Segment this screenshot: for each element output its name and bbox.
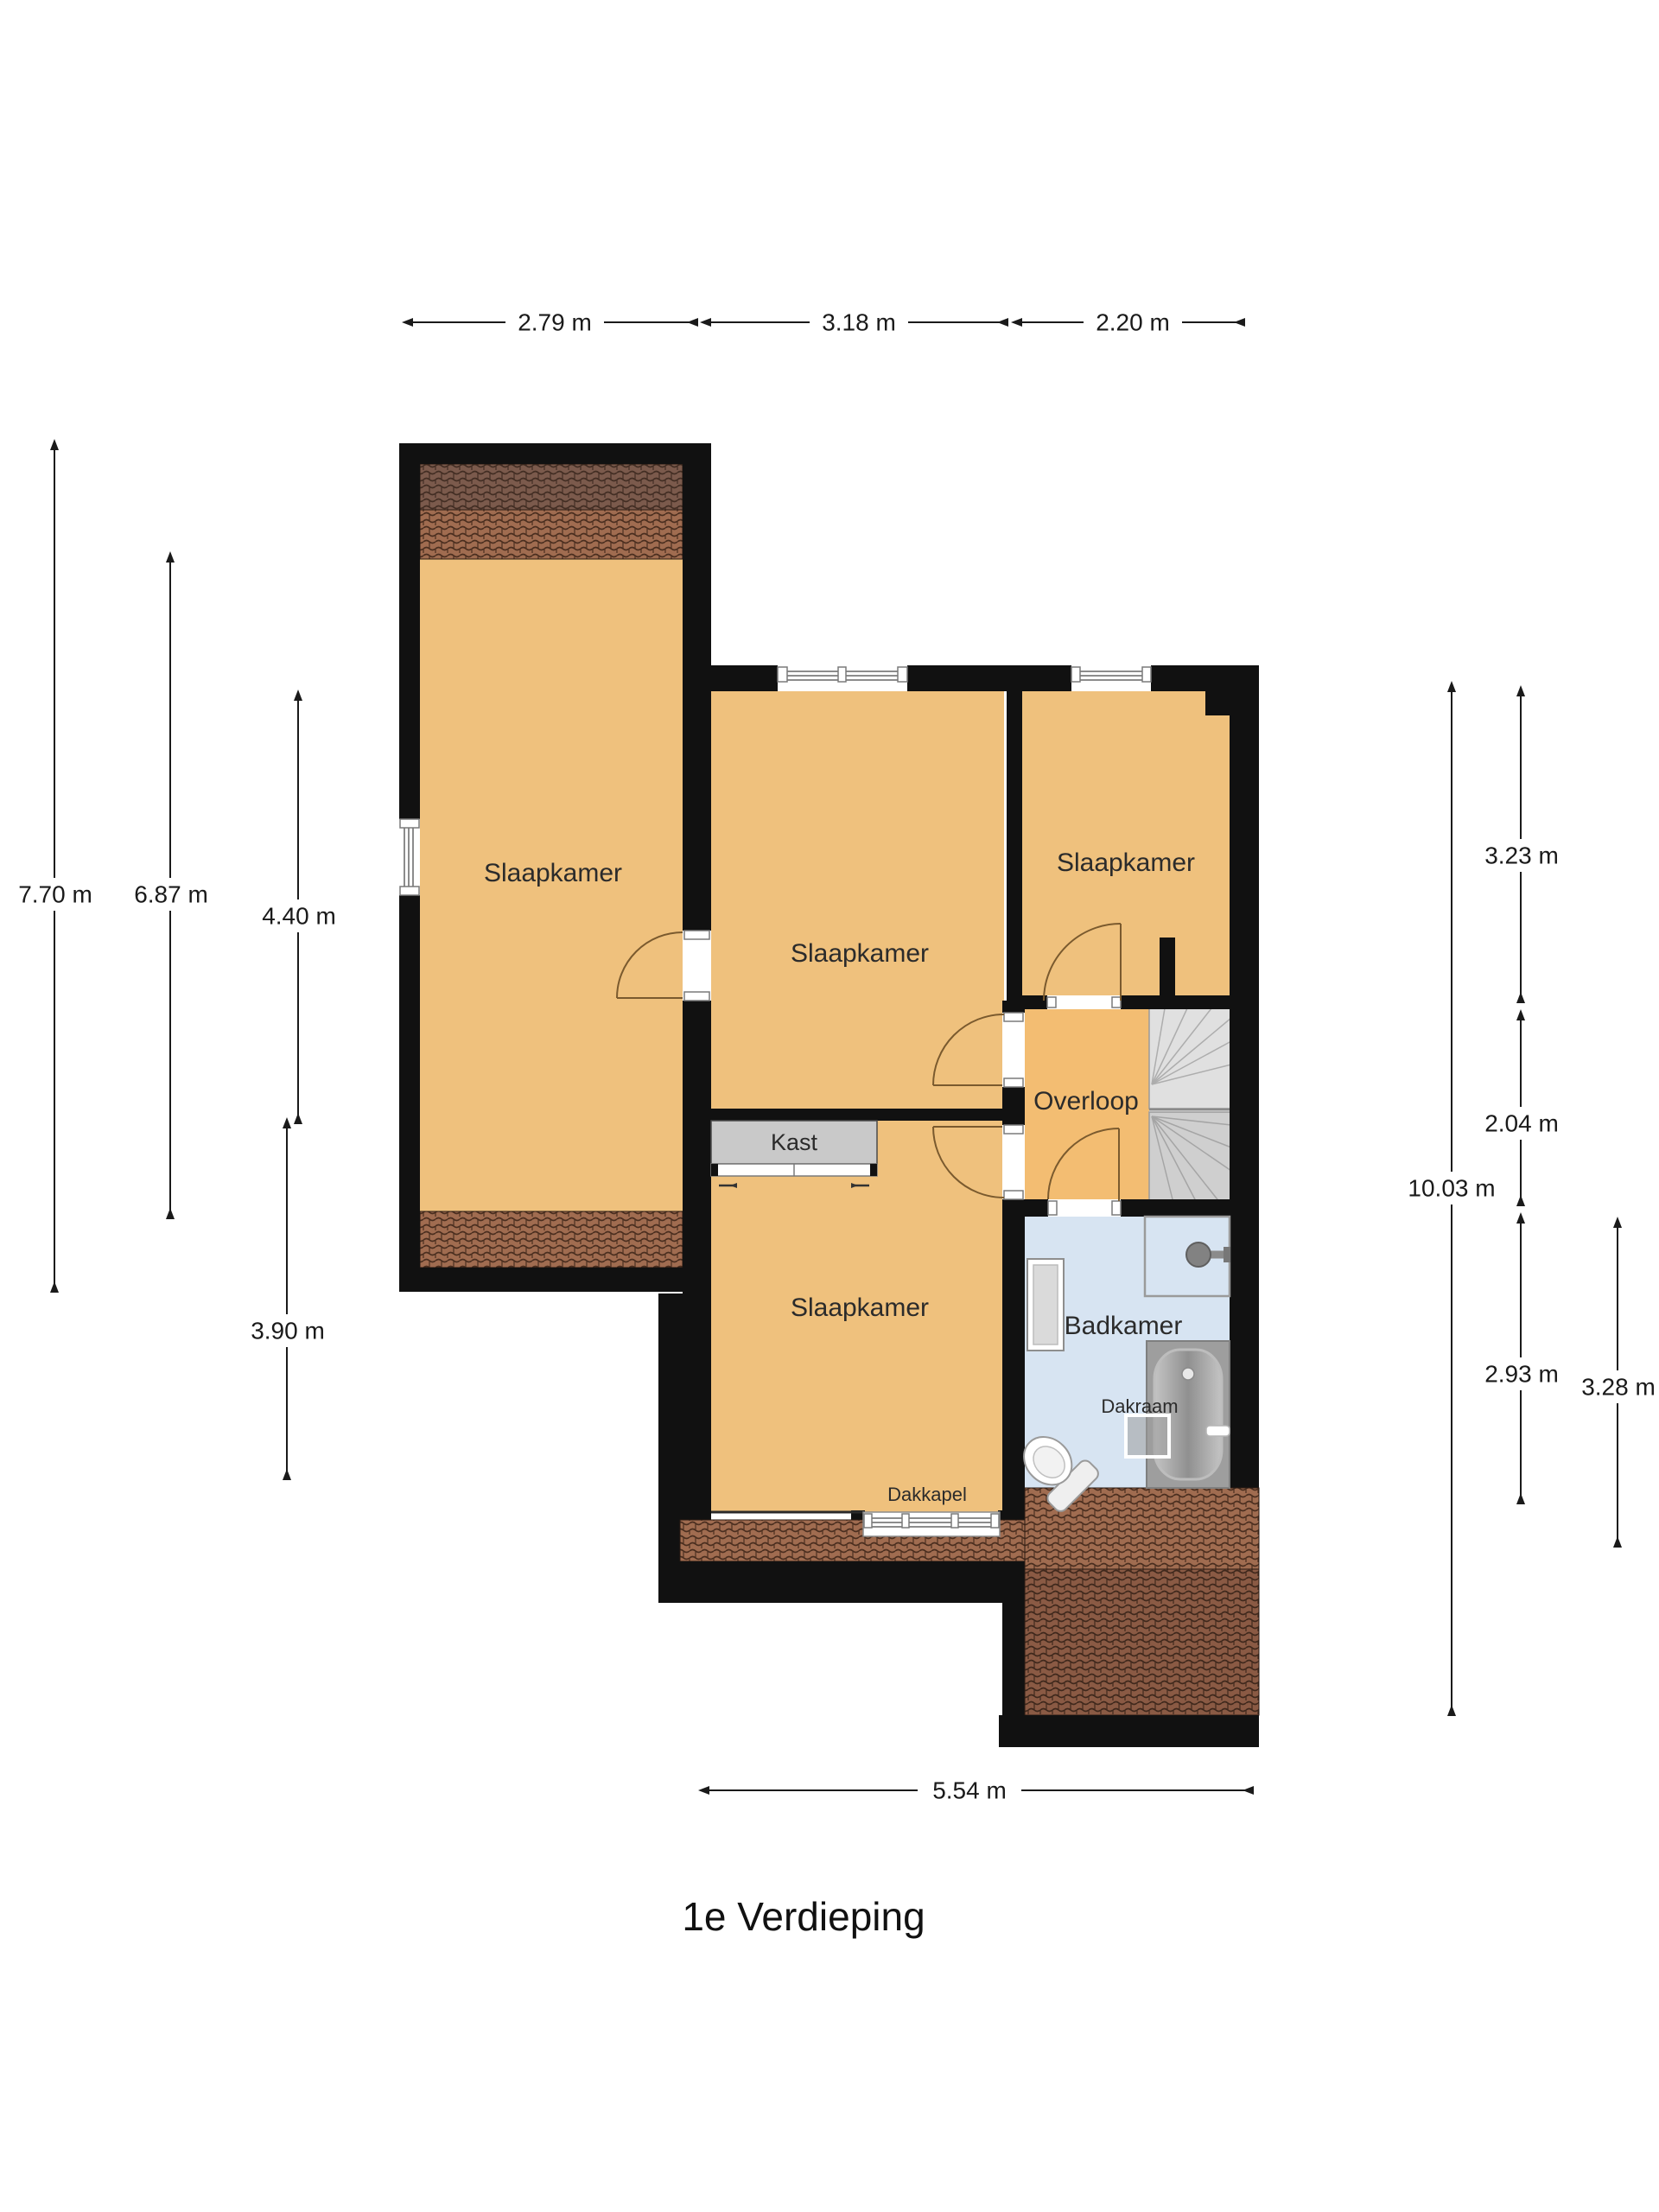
dim-right-3: 2.93 m xyxy=(1484,1360,1559,1387)
dim-left-bottom-room: 3.90 m xyxy=(238,1128,338,1479)
wall-bottomroom-outer-band xyxy=(658,1561,1025,1603)
radiator xyxy=(1027,1259,1064,1351)
roof-bathroom-lower xyxy=(1025,1569,1259,1715)
dim-right-bedroom: 3.23 m xyxy=(1471,696,1572,1002)
dim-top-middle-room: 3.18 m xyxy=(710,306,1007,339)
bedroom-right-floor xyxy=(1022,691,1230,1001)
dim-right-bathroom-roof: 3.28 m xyxy=(1568,1227,1659,1547)
dim-top-1: 2.79 m xyxy=(518,308,592,335)
dim-left-interior: 6.87 m xyxy=(121,562,221,1218)
wall-leftwing-top xyxy=(399,443,711,464)
dim-right-2: 2.04 m xyxy=(1484,1109,1559,1136)
wall-mid-right-divider xyxy=(1007,691,1022,1001)
dim-top-left-wing: 2.79 m xyxy=(412,306,697,339)
dim-left-3: 4.40 m xyxy=(262,902,336,929)
window-dormer xyxy=(863,1512,1000,1536)
floorplan-canvas: Slaapkamer Slaapkamer Slaapkamer Slaapka… xyxy=(0,0,1659,2212)
bathtub-handle xyxy=(1206,1426,1230,1436)
wall-leftwing-bottom xyxy=(399,1268,711,1292)
shower-head-icon xyxy=(1186,1243,1211,1267)
bedroom-middle-floor xyxy=(711,691,1004,1109)
bathroom-label: Badkamer xyxy=(1065,1312,1183,1340)
staircase xyxy=(1149,1008,1231,1203)
window-left-wall xyxy=(399,819,420,895)
closet-label: Kast xyxy=(771,1129,818,1155)
wall-chimney-notch xyxy=(1205,691,1230,715)
floorplan-page: { "floor_title": "1e Verdieping", "rooms… xyxy=(0,0,1659,2212)
dim-bottom-1: 5.54 m xyxy=(932,1777,1007,1803)
dim-left-4: 3.90 m xyxy=(251,1317,325,1344)
roof-window-icon xyxy=(1126,1415,1169,1457)
wall-bathroom-outer-band xyxy=(999,1715,1259,1747)
roof-left-wing-top-dark xyxy=(420,464,683,510)
bedroom-left-label: Slaapkamer xyxy=(484,859,622,887)
dim-left-exterior: 7.70 m xyxy=(5,449,105,1292)
stairs-upper-flight xyxy=(1149,1008,1231,1109)
bathtub-drain xyxy=(1182,1368,1194,1380)
floors xyxy=(420,559,1230,1512)
dim-left-upper-room: 4.40 m xyxy=(249,700,349,1123)
roof-left-wing-bottom xyxy=(420,1211,683,1268)
dim-top-3: 2.20 m xyxy=(1096,308,1170,335)
bedroom-right-label: Slaapkamer xyxy=(1057,849,1195,877)
roof-window-feature xyxy=(1126,1415,1169,1457)
bedroom-bottom-label: Slaapkamer xyxy=(791,1294,929,1322)
dim-top-2: 3.18 m xyxy=(822,308,896,335)
dim-left-2: 6.87 m xyxy=(134,880,208,907)
dim-bottom-width: 5.54 m xyxy=(709,1774,1253,1807)
dim-top-right-room: 2.20 m xyxy=(1021,306,1244,339)
roof-left-wing-top-light xyxy=(420,510,683,559)
shower-wall-mount xyxy=(1224,1247,1230,1262)
dormer-label: Dakkapel xyxy=(887,1484,967,1505)
roof-window-label: Dakraam xyxy=(1101,1395,1178,1417)
landing-label: Overloop xyxy=(1033,1087,1139,1116)
dim-left-1: 7.70 m xyxy=(18,880,92,907)
dim-right-bathroom: 2.93 m xyxy=(1471,1223,1572,1503)
floor-title: 1e Verdieping xyxy=(682,1894,925,1939)
window-middle-room-top xyxy=(778,665,907,691)
wall-midroom-bottom xyxy=(711,1109,1007,1121)
closet-track-cap-left xyxy=(711,1164,718,1176)
wall-stairwell-stub xyxy=(1160,938,1175,1001)
dim-right-total: 10.03 m xyxy=(1408,1174,1495,1201)
window-right-room-top xyxy=(1071,665,1151,691)
dim-right-1: 3.23 m xyxy=(1484,842,1559,868)
closet-track-cap-right xyxy=(870,1164,877,1176)
bedroom-middle-label: Slaapkamer xyxy=(791,939,929,968)
dim-right-4: 3.28 m xyxy=(1581,1373,1656,1400)
